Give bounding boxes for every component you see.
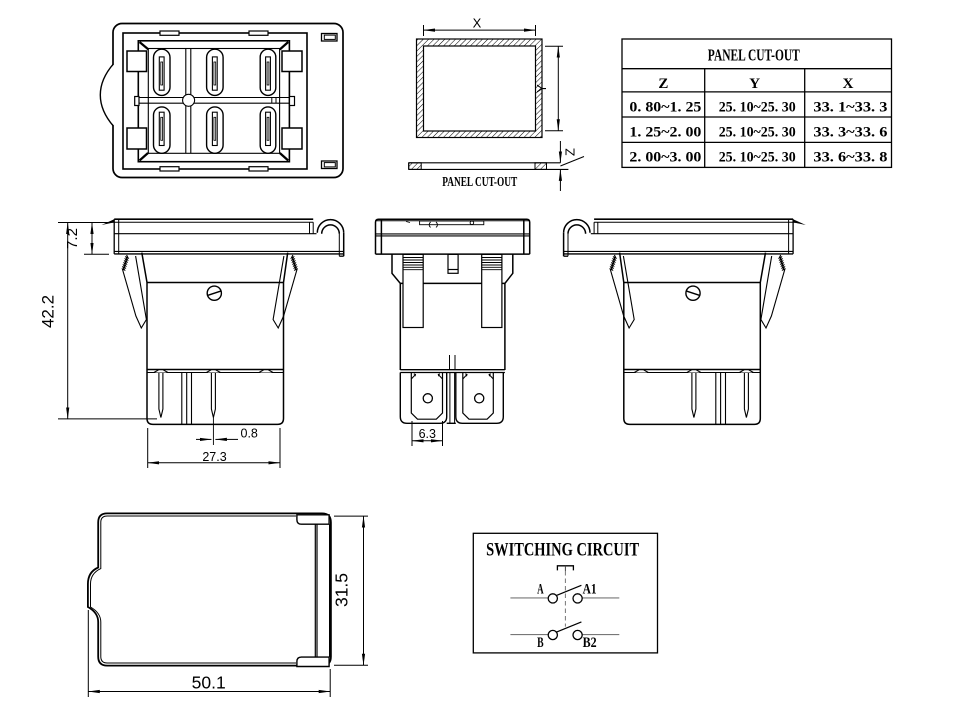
svg-text:Z: Z xyxy=(658,76,668,92)
svg-text:7.2: 7.2 xyxy=(64,228,81,249)
svg-text:X: X xyxy=(843,76,854,92)
svg-text:Y: Y xyxy=(534,84,549,93)
svg-text:1. 25~2. 00: 1. 25~2. 00 xyxy=(629,125,701,141)
svg-text:25. 10~25. 30: 25. 10~25. 30 xyxy=(719,150,796,166)
svg-text:2. 00~3. 00: 2. 00~3. 00 xyxy=(629,150,701,166)
svg-text:42.2: 42.2 xyxy=(39,295,58,328)
svg-text:6.3: 6.3 xyxy=(419,427,436,441)
svg-text:33. 6~33. 8: 33. 6~33. 8 xyxy=(813,150,887,166)
svg-text:33. 1~33. 3: 33. 1~33. 3 xyxy=(813,99,887,115)
svg-text:SWITCHING CIRCUIT: SWITCHING CIRCUIT xyxy=(486,541,640,561)
svg-text:25. 10~25. 30: 25. 10~25. 30 xyxy=(719,99,796,115)
svg-text:B2: B2 xyxy=(583,635,597,651)
svg-text:33. 3~33. 6: 33. 3~33. 6 xyxy=(813,125,888,141)
svg-text:PANEL CUT-OUT: PANEL CUT-OUT xyxy=(442,174,517,189)
svg-text:31.5: 31.5 xyxy=(332,573,352,607)
svg-text:B: B xyxy=(537,635,544,651)
svg-text:X: X xyxy=(473,16,482,31)
svg-text:0.8: 0.8 xyxy=(241,427,258,441)
svg-text:A1: A1 xyxy=(583,582,597,598)
svg-text:PANEL CUT-OUT: PANEL CUT-OUT xyxy=(708,46,800,65)
svg-text:25. 10~25. 30: 25. 10~25. 30 xyxy=(719,125,796,141)
svg-text:A: A xyxy=(537,582,544,598)
svg-text:Y: Y xyxy=(749,76,760,92)
svg-text:0. 80~1. 25: 0. 80~1. 25 xyxy=(629,99,701,115)
svg-text:50.1: 50.1 xyxy=(192,672,226,692)
svg-text:Z: Z xyxy=(563,148,578,156)
svg-text:27.3: 27.3 xyxy=(202,450,226,464)
